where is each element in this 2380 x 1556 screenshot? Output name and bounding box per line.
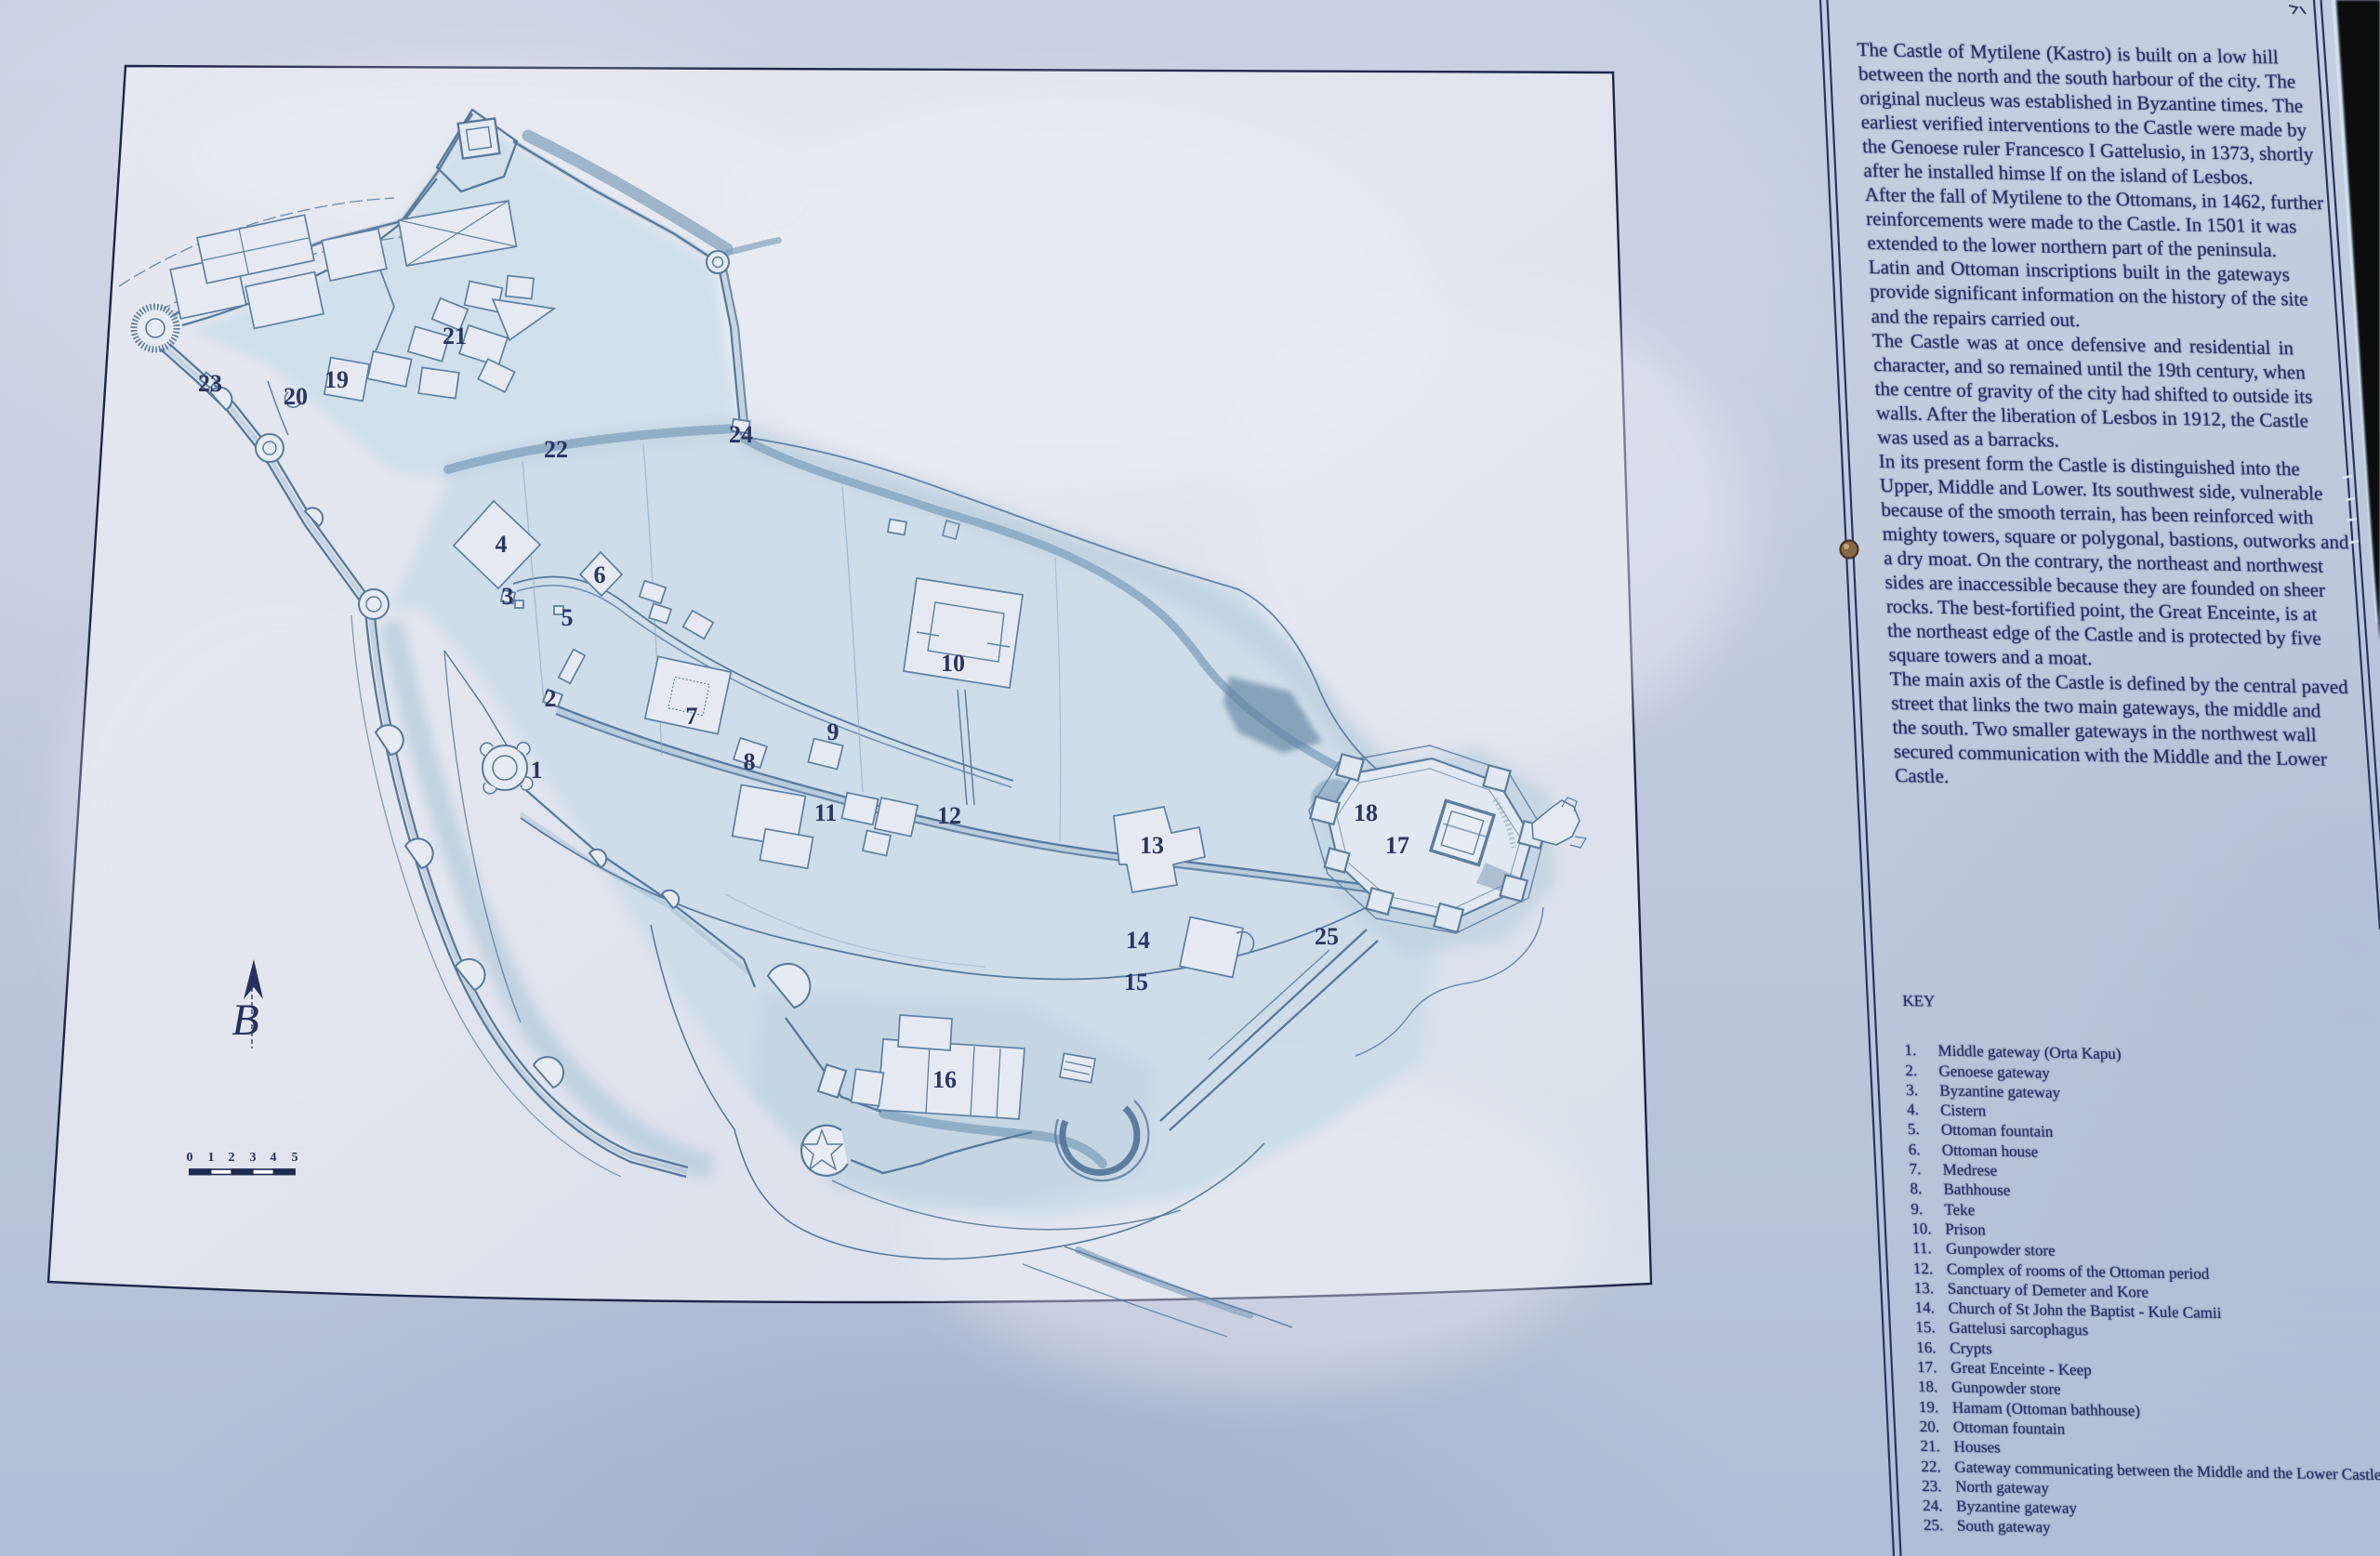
svg-text:25: 25 — [1315, 923, 1339, 950]
svg-text:6: 6 — [594, 561, 606, 588]
svg-text:B: B — [231, 996, 258, 1045]
svg-text:0: 0 — [187, 1151, 193, 1165]
svg-text:18: 18 — [1354, 799, 1378, 826]
svg-text:14: 14 — [1126, 927, 1150, 954]
svg-text:5: 5 — [292, 1151, 298, 1165]
svg-text:4: 4 — [271, 1151, 277, 1165]
svg-text:16: 16 — [932, 1066, 957, 1093]
svg-text:8: 8 — [744, 748, 756, 775]
svg-text:5: 5 — [562, 604, 574, 631]
svg-text:4: 4 — [496, 531, 508, 558]
svg-text:3: 3 — [250, 1151, 257, 1165]
svg-text:1: 1 — [208, 1151, 215, 1165]
svg-text:2: 2 — [545, 685, 557, 712]
svg-text:15: 15 — [1124, 969, 1148, 996]
svg-text:17: 17 — [1385, 832, 1409, 859]
svg-text:3: 3 — [502, 583, 514, 610]
svg-text:1: 1 — [531, 757, 543, 784]
svg-text:11: 11 — [814, 799, 838, 826]
svg-text:24: 24 — [729, 421, 753, 448]
svg-text:12: 12 — [937, 802, 961, 829]
svg-text:7: 7 — [686, 703, 698, 730]
svg-text:21: 21 — [443, 323, 467, 349]
svg-text:2: 2 — [229, 1151, 235, 1165]
svg-text:19: 19 — [324, 366, 349, 393]
svg-text:9: 9 — [827, 719, 840, 745]
svg-text:23: 23 — [198, 370, 222, 397]
svg-text:22: 22 — [544, 436, 568, 463]
svg-text:13: 13 — [1140, 832, 1164, 859]
svg-text:20: 20 — [284, 383, 308, 410]
svg-text:10: 10 — [941, 650, 965, 677]
